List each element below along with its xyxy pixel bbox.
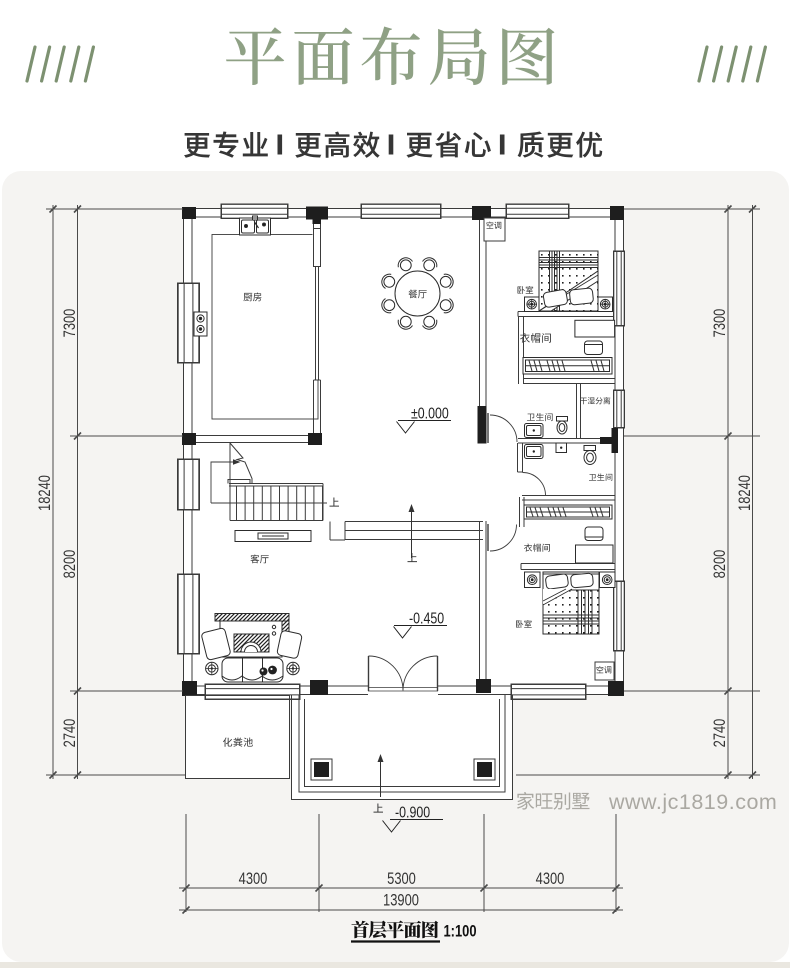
svg-text:±0.000: ±0.000 <box>411 404 449 422</box>
svg-text:8200: 8200 <box>710 550 729 579</box>
svg-text:7300: 7300 <box>60 309 79 338</box>
svg-text:13900: 13900 <box>383 891 419 910</box>
svg-text:2740: 2740 <box>710 719 729 748</box>
svg-text:www.jc1819.com: www.jc1819.com <box>608 790 777 814</box>
svg-text:18240: 18240 <box>735 475 754 511</box>
svg-text:4300: 4300 <box>536 869 565 888</box>
svg-text:1:100: 1:100 <box>444 922 477 941</box>
svg-text:18240: 18240 <box>35 475 54 511</box>
svg-text:4300: 4300 <box>239 869 268 888</box>
svg-text:8200: 8200 <box>60 550 79 579</box>
svg-text:-0.900: -0.900 <box>395 803 430 821</box>
svg-text:2740: 2740 <box>60 719 79 748</box>
svg-text:5300: 5300 <box>387 869 416 888</box>
svg-text:-0.450: -0.450 <box>409 609 444 627</box>
svg-text:7300: 7300 <box>710 309 729 338</box>
